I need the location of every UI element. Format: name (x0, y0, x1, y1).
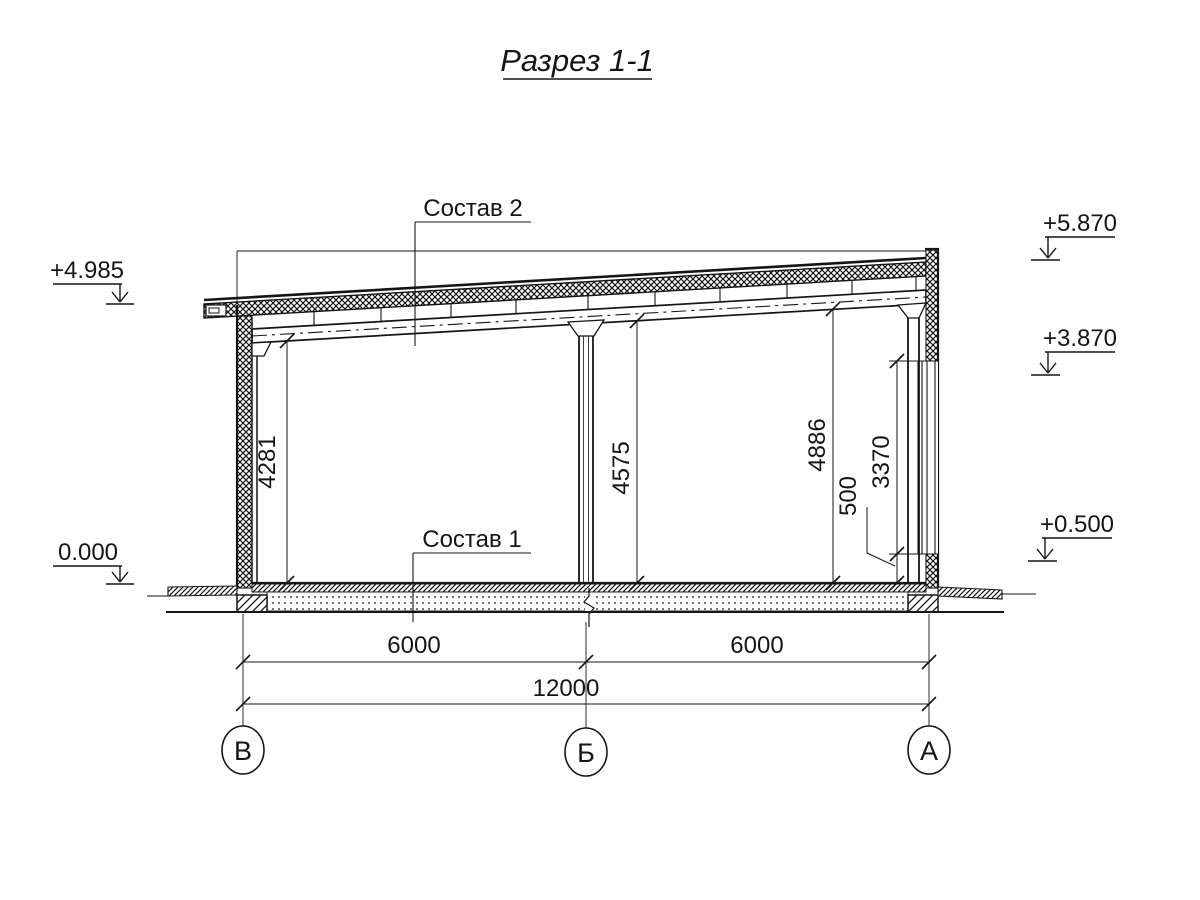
dim-height-mid: 4575 (608, 441, 635, 494)
elevation-mark-right-mid: +3.870 (1031, 325, 1117, 375)
apron-right (938, 587, 1036, 599)
left-wall (237, 305, 252, 588)
elevation-left-zero-value: 0.000 (58, 539, 118, 566)
dim-height-right: 4886 (804, 418, 831, 471)
foundation-right (908, 595, 938, 612)
section-drawing: Состав 2 Состав 1 +5.870 +3.870 +0.500 +… (0, 0, 1200, 900)
dim-span-left: 6000 (387, 632, 440, 659)
elevation-left-top-value: +4.985 (50, 257, 124, 284)
break-line (584, 588, 594, 627)
apron-left (147, 586, 237, 596)
axis-label-mid: Б (577, 738, 595, 768)
page-title: Разрез 1-1 (500, 43, 654, 78)
floor-composition-label: Состав 1 (422, 526, 522, 553)
right-wall-window (918, 361, 938, 554)
middle-column (568, 320, 604, 583)
dim-height-left: 4281 (254, 435, 281, 488)
roof-composition-label: Состав 2 (423, 195, 523, 222)
elevation-right-mid-value: +3.870 (1043, 325, 1117, 352)
axis-label-right: А (920, 736, 938, 766)
dim-sill-height: 500 (835, 476, 862, 516)
dim-span-right: 6000 (730, 632, 783, 659)
bottom-dimensions (236, 614, 936, 729)
elevation-right-top-value: +5.870 (1043, 210, 1117, 237)
elevation-mark-right-low: +0.500 (1028, 511, 1114, 561)
elevation-mark-left-zero: 0.000 (53, 539, 134, 584)
elevation-right-low-value: +0.500 (1040, 511, 1114, 538)
foundation-left (237, 595, 267, 612)
blueprint-sheet: Состав 2 Состав 1 +5.870 +3.870 +0.500 +… (0, 0, 1200, 900)
axis-label-left: В (234, 736, 252, 766)
roof-structure (204, 258, 926, 343)
dim-total: 12000 (533, 675, 600, 702)
elevation-mark-left-top: +4.985 (50, 257, 134, 304)
elevation-mark-right-top: +5.870 (1031, 210, 1117, 260)
dim-window-height: 3370 (868, 435, 895, 488)
